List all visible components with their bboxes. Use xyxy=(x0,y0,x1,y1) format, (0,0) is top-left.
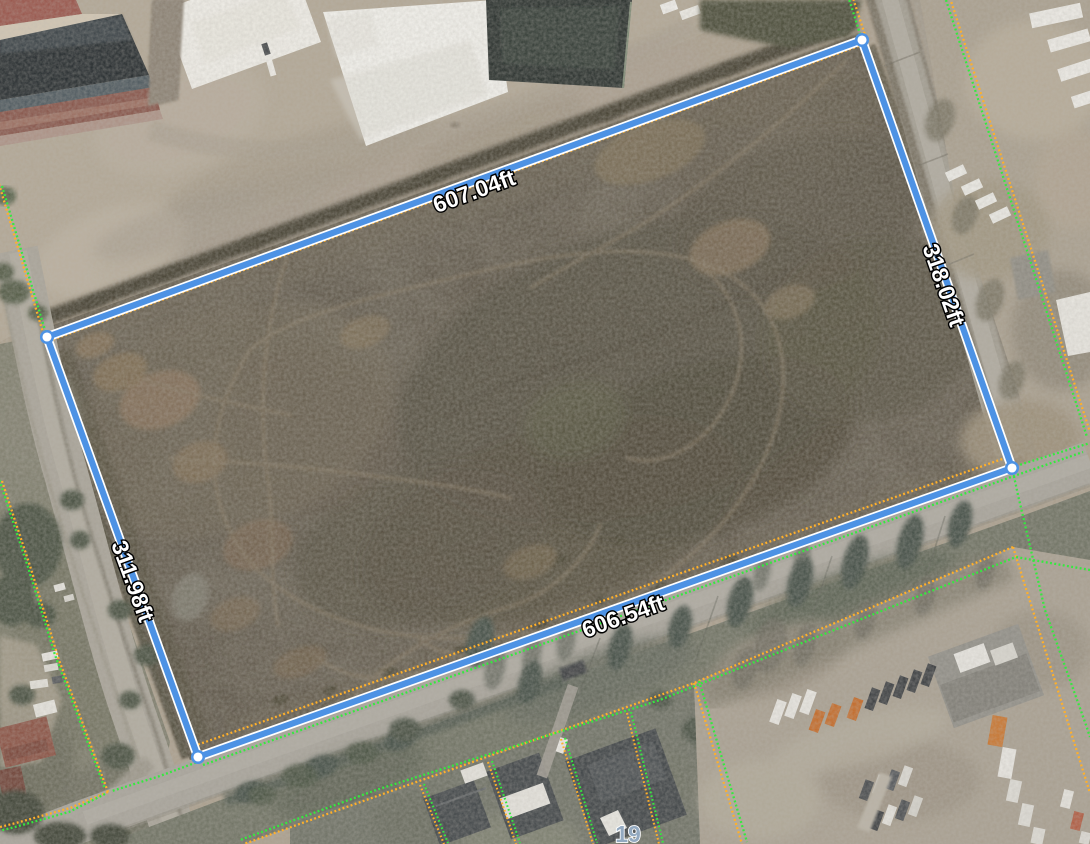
svg-text:19: 19 xyxy=(615,821,641,844)
